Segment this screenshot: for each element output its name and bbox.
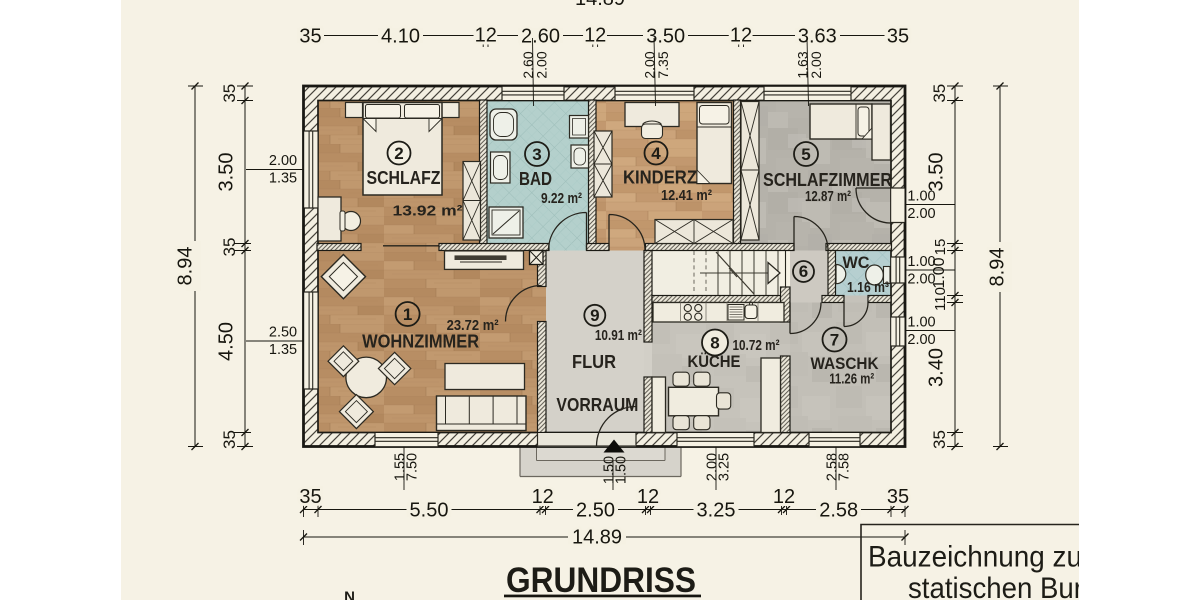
svg-text:7.35: 7.35 (655, 51, 671, 78)
svg-text:3: 3 (532, 145, 541, 164)
svg-text:10.91 m²: 10.91 m² (595, 327, 642, 344)
svg-text:FLUR: FLUR (572, 352, 616, 372)
svg-text:2.00: 2.00 (269, 153, 297, 169)
svg-text:14.89: 14.89 (572, 527, 622, 549)
svg-text:4.50: 4.50 (216, 322, 238, 361)
svg-text:3.50: 3.50 (646, 26, 685, 48)
svg-text:2.00: 2.00 (534, 51, 550, 78)
svg-text:SCHLAFZ: SCHLAFZ (367, 168, 441, 188)
svg-text:35: 35 (930, 430, 949, 449)
svg-text:1: 1 (403, 305, 412, 324)
svg-text:1.35: 1.35 (269, 342, 297, 358)
svg-text:35: 35 (299, 486, 321, 508)
svg-text:7: 7 (830, 331, 839, 350)
svg-text:8.94: 8.94 (987, 248, 1009, 287)
svg-text:35: 35 (887, 486, 909, 508)
svg-text:Bauzeichnung zu: Bauzeichnung zu (868, 541, 1082, 574)
svg-text:35: 35 (220, 430, 239, 449)
svg-text:12.87 m²: 12.87 m² (805, 188, 851, 205)
svg-text:2.60: 2.60 (521, 26, 560, 48)
svg-text:statischen Bur: statischen Bur (908, 572, 1083, 600)
svg-text:2: 2 (394, 144, 403, 163)
svg-text:VORRAUM: VORRAUM (556, 395, 638, 415)
svg-text:8.94: 8.94 (175, 247, 197, 286)
svg-text:12: 12 (637, 486, 659, 508)
svg-text:4: 4 (651, 144, 661, 163)
svg-text:12: 12 (730, 25, 752, 47)
svg-text:3.25: 3.25 (697, 500, 736, 522)
svg-text:3.63: 3.63 (798, 26, 837, 48)
svg-text:35: 35 (299, 26, 321, 48)
svg-text:6: 6 (799, 262, 808, 281)
svg-text:3.50: 3.50 (216, 153, 238, 192)
svg-text:7.50: 7.50 (405, 453, 421, 481)
svg-text:BAD: BAD (519, 169, 552, 189)
svg-text:2.00: 2.00 (907, 206, 935, 222)
svg-text:SCHLAFZIMMER: SCHLAFZIMMER (763, 170, 892, 190)
svg-text:KÜCHE: KÜCHE (688, 352, 741, 371)
svg-text:WOHNZIMMER: WOHNZIMMER (362, 332, 479, 352)
svg-text:23.72 m²: 23.72 m² (447, 317, 499, 334)
svg-text:1.16 m³: 1.16 m³ (847, 279, 889, 296)
svg-text:9.22 m²: 9.22 m² (541, 190, 582, 207)
svg-text:3.25: 3.25 (717, 453, 733, 481)
svg-text:N: N (344, 589, 355, 600)
svg-text:1.00: 1.00 (907, 254, 935, 270)
svg-text:2.58: 2.58 (819, 500, 858, 522)
svg-text:1.00: 1.00 (907, 315, 935, 331)
svg-text:3.50: 3.50 (926, 153, 948, 192)
svg-text:5: 5 (801, 145, 810, 164)
svg-text:WC: WC (843, 253, 870, 272)
svg-text:1.35: 1.35 (269, 171, 297, 187)
svg-text:2.00: 2.00 (907, 272, 935, 288)
svg-text:8: 8 (710, 334, 719, 353)
svg-text:11.26 m²: 11.26 m² (829, 371, 874, 388)
svg-text:35: 35 (220, 238, 239, 257)
svg-text:12: 12 (532, 486, 554, 508)
svg-text:35: 35 (220, 84, 239, 103)
svg-text:12: 12 (773, 486, 795, 508)
svg-text:12: 12 (584, 25, 606, 47)
svg-text:2.50: 2.50 (269, 325, 297, 341)
svg-text:13.92 m²: 13.92 m² (393, 203, 463, 220)
svg-text:35: 35 (930, 84, 949, 103)
svg-text:14.89: 14.89 (575, 0, 625, 10)
svg-text:35: 35 (887, 26, 909, 48)
svg-text:2.00: 2.00 (808, 51, 824, 78)
svg-text:12: 12 (475, 25, 497, 47)
svg-text:4.10: 4.10 (381, 26, 420, 48)
svg-text:KINDERZ: KINDERZ (623, 168, 697, 188)
svg-text:1.00: 1.00 (907, 189, 935, 205)
svg-text:3.40: 3.40 (926, 348, 948, 387)
svg-text:5.50: 5.50 (410, 500, 449, 522)
svg-text:7.58: 7.58 (837, 453, 853, 481)
svg-text:9: 9 (590, 306, 599, 325)
svg-text:12.41 m²: 12.41 m² (661, 187, 712, 204)
svg-text:15: 15 (932, 239, 949, 256)
svg-text:GRUNDRISS: GRUNDRISS (506, 561, 696, 600)
svg-text:2.00: 2.00 (907, 332, 935, 348)
svg-text:2.50: 2.50 (576, 500, 615, 522)
svg-text:1.50: 1.50 (614, 456, 630, 484)
svg-text:110: 110 (932, 287, 949, 311)
